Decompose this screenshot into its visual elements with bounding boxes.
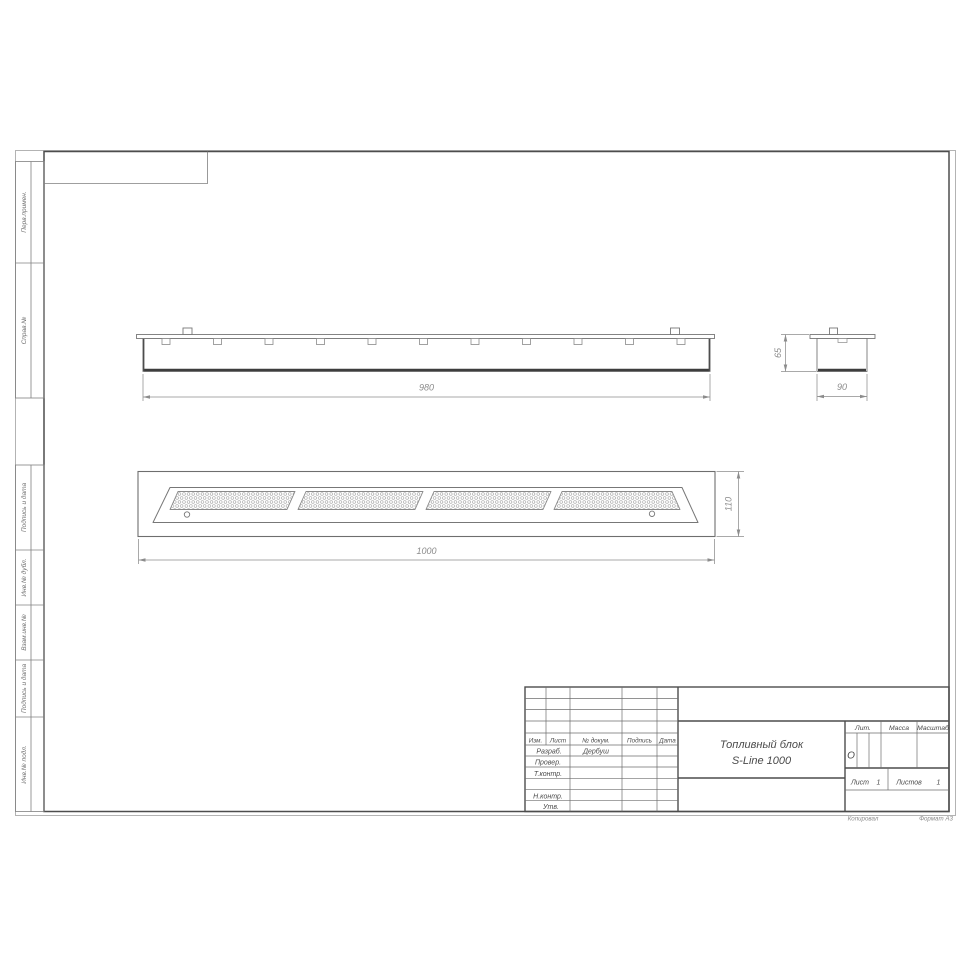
tab [677,339,685,345]
title-block-right-headers: Лит. Масса Масштаб [854,724,950,732]
product-title-line2: S-Line 1000 [732,755,792,767]
role-utv: Утв. [542,804,559,811]
tab [265,339,273,345]
tab [626,339,634,345]
footer-notations: Копировал Формат А3 [848,816,954,823]
side-inner-tab [838,339,847,343]
tab [471,339,479,345]
role-razrab: Разраб. [536,748,561,756]
gost-drawing: Перв.примен. Справ.№ Подпись и дата Инв.… [0,0,970,970]
dim-side-width: 90 [837,382,847,392]
dim-side-height: 65 [773,347,783,358]
product-title-line1: Топливный блок [720,739,804,751]
drawing-sheet-page: Перв.примен. Справ.№ Подпись и дата Инв.… [0,0,970,970]
margin-label-podpis-data-1: Подпись и дата [20,483,28,533]
list-value: 1 [877,780,881,787]
listov-value: 1 [937,780,941,787]
plan-hole-right [649,511,654,516]
scale-label: Масштаб [917,724,950,732]
col-header-podpis: Подпись [627,737,652,745]
dim-plan-length: 1000 [416,546,436,556]
perforated-strip-4 [554,492,680,510]
dim-plan-width: 110 [724,497,734,511]
col-header-list: Лист [549,738,566,745]
lit-value: О [847,751,855,762]
front-top-tab-right [671,328,680,335]
col-header-doc: № докум. [582,737,610,745]
tab [420,339,428,345]
margin-label-inv-dubl: Инв.№ дубл. [20,558,28,596]
side-body [817,339,867,372]
perforated-strip-3 [426,492,551,510]
margin-label-vzam-inv: Взам.инв.№ [21,614,28,651]
side-top-tab [830,328,838,335]
front-flange [137,335,715,339]
front-top-tab-left [183,328,192,335]
margin-label-inv-podl: Инв.№ подл. [20,745,28,784]
format-label: Формат А3 [919,816,953,823]
copied-by-label: Копировал [848,816,879,823]
mass-label: Масса [889,725,909,732]
margin-label-perv-primen: Перв.примен. [21,191,28,233]
perforated-strip-2 [298,492,423,510]
perforated-strip-1 [170,492,295,510]
side-flange [810,335,875,339]
lit-label: Лит. [854,725,871,732]
role-nkontr: Н.контр. [533,794,563,801]
listov-label: Листов [895,780,922,787]
col-header-izm: Изм. [529,738,542,745]
razrab-name: Дербуш [582,748,609,756]
list-label: Лист [850,780,869,787]
plan-hole-left [184,512,189,517]
tab [523,339,531,345]
role-tkontr: Т.контр. [534,771,562,778]
margin-label-podpis-data-2: Подпись и дата [20,664,28,714]
tab [214,339,222,345]
dim-front-width: 980 [419,383,434,393]
tab [162,339,170,345]
role-prover: Провер. [535,760,561,767]
tab [574,339,582,345]
margin-label-sprav-no: Справ.№ [21,317,28,345]
tab [317,339,325,345]
col-header-data: Дата [658,738,676,745]
tab [368,339,376,345]
